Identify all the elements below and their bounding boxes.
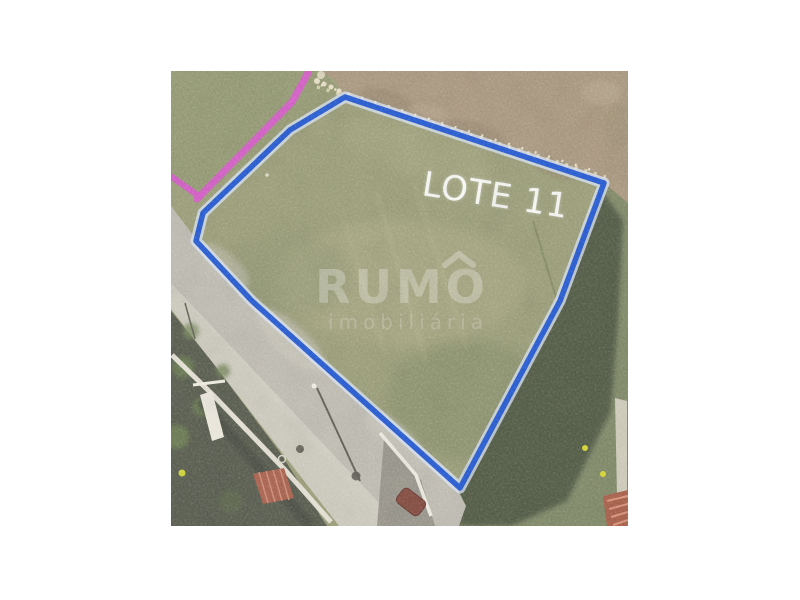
photo-wash bbox=[171, 71, 628, 526]
listing-photo-page: LOTE 11 LOTE 11 RUMO imobiliária bbox=[0, 0, 800, 600]
aerial-photo-svg: LOTE 11 LOTE 11 RUMO imobiliária bbox=[171, 71, 628, 526]
aerial-photo: LOTE 11 LOTE 11 RUMO imobiliária bbox=[171, 71, 628, 526]
